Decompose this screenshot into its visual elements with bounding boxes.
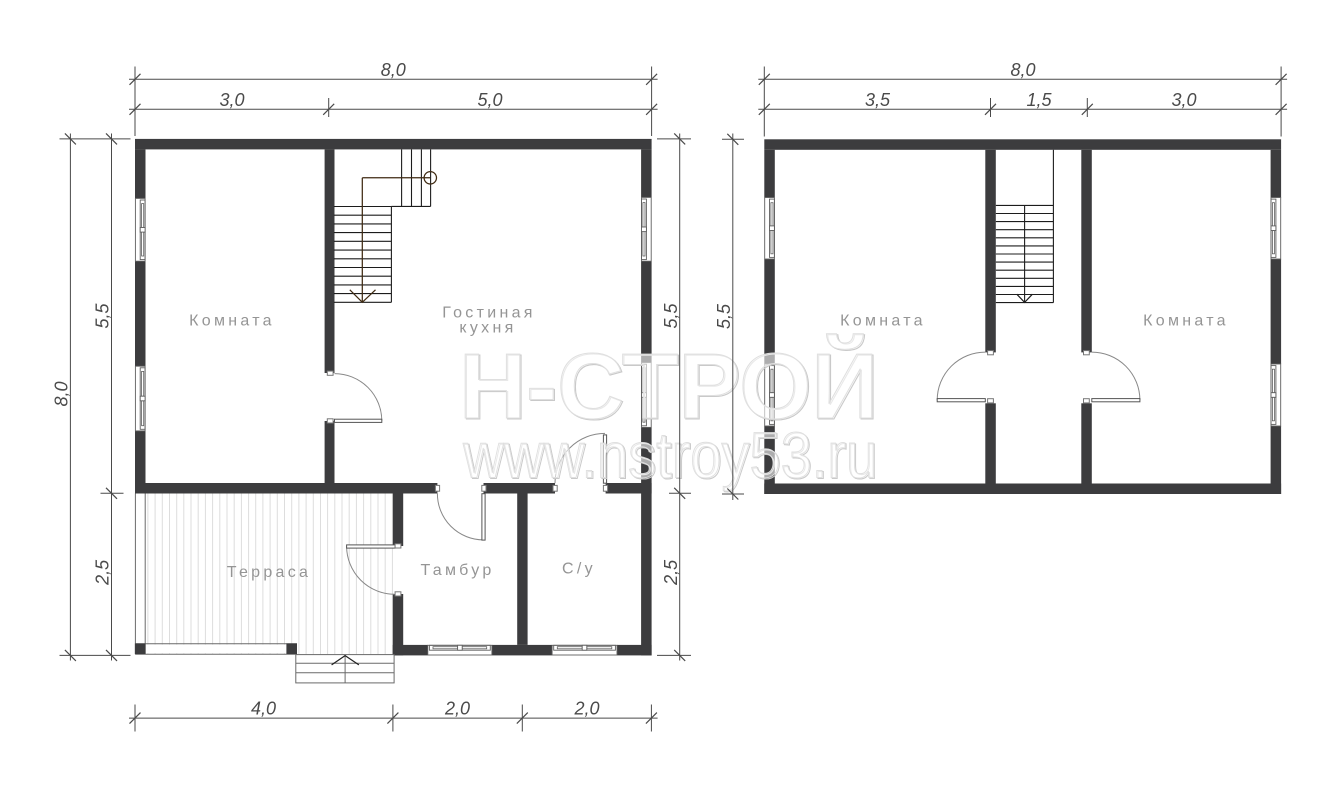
svg-text:2,0: 2,0 [444,698,470,718]
svg-text:8,0: 8,0 [51,381,71,406]
svg-text:5,5: 5,5 [93,303,113,329]
svg-text:Тамбур: Тамбур [420,562,494,579]
svg-text:4,0: 4,0 [251,698,276,718]
svg-text:5,5: 5,5 [661,303,681,329]
svg-text:5,0: 5,0 [477,90,502,110]
svg-text:Комната: Комната [840,313,926,330]
svg-text:2,5: 2,5 [93,559,113,586]
svg-text:2,5: 2,5 [661,559,681,586]
svg-text:С/у: С/у [562,561,596,578]
svg-text:www.nstroy53.ru: www.nstroy53.ru [462,419,877,492]
svg-text:3,0: 3,0 [1171,90,1196,110]
svg-text:Комната: Комната [189,313,275,330]
svg-text:3,0: 3,0 [219,90,244,110]
svg-text:Терраса: Терраса [227,564,311,581]
svg-text:8,0: 8,0 [381,60,406,80]
svg-text:3,5: 3,5 [865,90,891,110]
svg-text:5,5: 5,5 [714,303,734,329]
svg-text:1,5: 1,5 [1026,90,1052,110]
svg-text:8,0: 8,0 [1010,60,1035,80]
svg-text:Комната: Комната [1143,313,1229,330]
svg-text:2,0: 2,0 [573,698,599,718]
